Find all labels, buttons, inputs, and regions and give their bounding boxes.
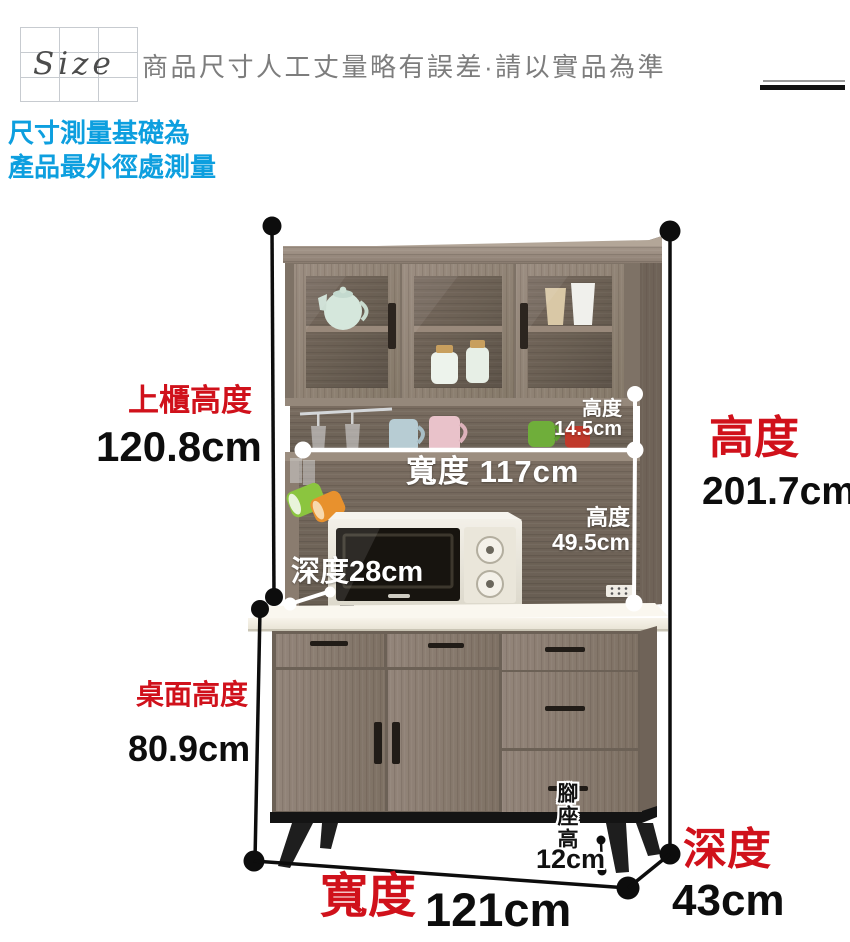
total-width-label: 寬度 [320, 872, 416, 922]
top-drawers [276, 634, 638, 670]
total-height-value: 201.7cm [702, 472, 850, 513]
counter-height-label: 桌面高度 [128, 680, 248, 709]
upper-cabinet-height-value: 120.8cm [96, 425, 252, 469]
total-depth-value: 43cm [672, 878, 785, 924]
power-outlet [606, 585, 634, 597]
counter-height-value: 80.9cm [128, 730, 246, 768]
countertop [248, 603, 668, 632]
product-size-diagram: Size 商品尺寸人工丈量略有誤差·請以實品為準 尺寸測量基礎為 產品最外徑處測… [0, 0, 850, 942]
leg-height-label: 腳座高 [556, 782, 577, 851]
shelf-height-label: 高度 [540, 399, 622, 420]
glass-door-left [294, 264, 400, 398]
inner-depth-label: 深度28cm [291, 557, 423, 587]
total-width-value: 121cm [425, 885, 571, 934]
inner-width-label: 寬度 117cm [406, 456, 579, 489]
open-height-value: 49.5cm [548, 530, 630, 554]
glass-door-middle [402, 264, 514, 398]
total-depth-label: 深度 [683, 827, 771, 873]
total-height-label: 高度 [709, 414, 799, 461]
open-height-label: 高度 [548, 506, 630, 529]
glass-door-right [516, 264, 624, 398]
upper-cabinet-height-label: 上櫃高度 [120, 385, 252, 418]
leg-height-value: 12cm [536, 845, 605, 873]
shelf-height-value: 14.5cm [540, 419, 622, 440]
